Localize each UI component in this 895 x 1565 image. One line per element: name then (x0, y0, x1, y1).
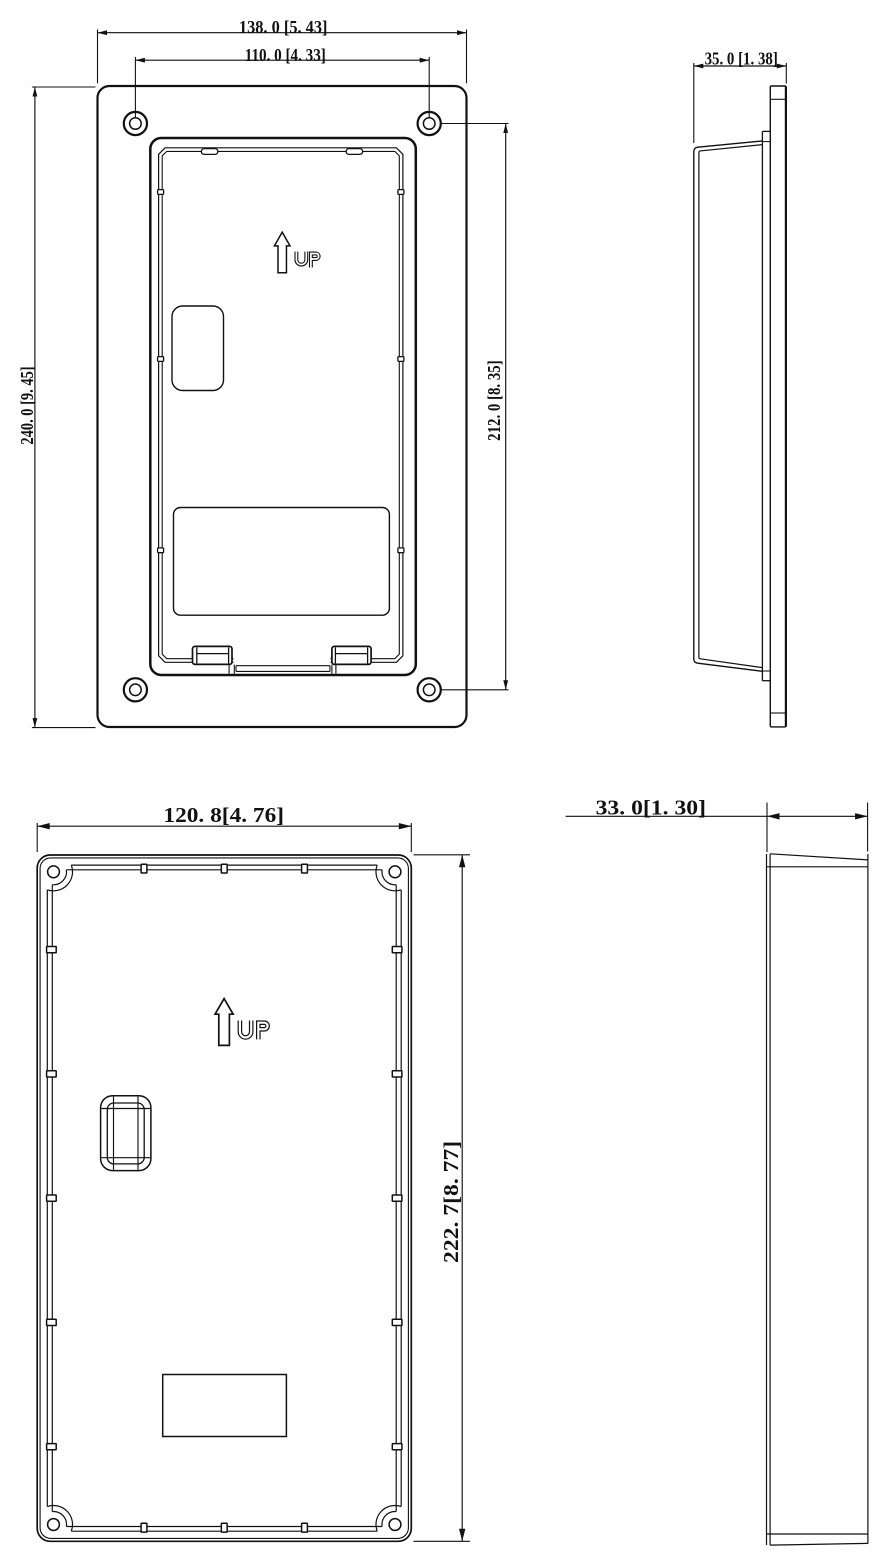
svg-text:240. 0 [9. 45]: 240. 0 [9. 45] (17, 366, 37, 444)
svg-text:222. 7[8. 77]: 222. 7[8. 77] (439, 1141, 463, 1263)
svg-text:110. 0 [4. 33]: 110. 0 [4. 33] (245, 45, 326, 65)
svg-text:138. 0 [5. 43]: 138. 0 [5. 43] (239, 17, 328, 37)
svg-text:212. 0 [8. 35]: 212. 0 [8. 35] (484, 360, 504, 441)
svg-text:120. 8[4. 76]: 120. 8[4. 76] (163, 803, 284, 827)
svg-text:33. 0[1. 30]: 33. 0[1. 30] (596, 795, 706, 819)
svg-text:35. 0 [1. 38]: 35. 0 [1. 38] (705, 49, 778, 69)
